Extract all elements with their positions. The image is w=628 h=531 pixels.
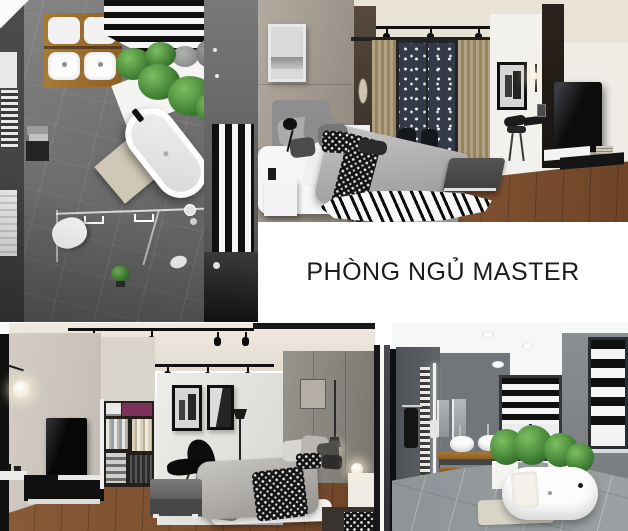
track2-light-3: [214, 337, 221, 346]
recessed-light-1: [482, 331, 494, 338]
recessed-light-3: [522, 343, 533, 349]
bed2-pillow-dark: [322, 454, 343, 469]
art1-shape-a: [179, 400, 185, 420]
render-collage: PHÒNG NGỦ MASTER: [0, 0, 628, 531]
caption-area: PHÒNG NGỦ MASTER: [258, 222, 628, 322]
art-shape-1: [505, 75, 512, 97]
art-frame-1: [172, 385, 202, 431]
black-lamp-shade: [283, 118, 297, 130]
desk-photo-frame: [537, 104, 546, 117]
panel-seam-b: [345, 351, 346, 483]
tub-towel: [511, 471, 539, 509]
wall-seam-1: [258, 84, 354, 85]
end-bench-cushion: [344, 512, 376, 531]
nightstand: [264, 180, 297, 216]
wardrobe-interior: [104, 401, 154, 487]
nightstand2-lamp: [351, 463, 363, 475]
wardrobe-white-box: [106, 403, 121, 416]
bath-window-2: [588, 337, 628, 449]
pendant-cord: [334, 380, 336, 438]
art-shape-2: [513, 71, 521, 99]
towel-bar: [402, 405, 422, 407]
recessed-light-2: [492, 361, 504, 368]
pillow-dark: [289, 137, 316, 159]
zebra-blind-2: [591, 340, 625, 426]
bath-slim-striped-blind: [420, 367, 430, 485]
bathroom-floor-shading: [0, 0, 258, 322]
wall-lamp-bulb: [530, 72, 538, 80]
nightstand2: [348, 473, 374, 509]
bed-ottoman: [442, 158, 505, 192]
photo-horizon: [271, 57, 303, 69]
track2-bar-1: [68, 328, 254, 331]
vanity-mirror-1: [437, 400, 449, 437]
wall-tv: [554, 82, 602, 152]
nightstand-vase: [268, 168, 276, 180]
wardrobe-shelves: [106, 453, 126, 483]
tub-drain: [548, 491, 552, 495]
console-white-shelf: [58, 475, 104, 480]
bath-sink-1: [450, 436, 474, 452]
ceiling-dark-edge: [253, 323, 375, 329]
ottoman2-foot-1: [153, 514, 159, 518]
book-stack: [596, 146, 613, 153]
art-frame-2: [207, 385, 234, 430]
left-black-strip: [0, 323, 9, 531]
tv-bottom: [46, 418, 87, 479]
bed2-diamond-throw: [251, 466, 309, 522]
bed2-pillow-diamond: [296, 452, 322, 469]
tub-overflow: [578, 483, 583, 488]
left-lamp-globe: [13, 381, 30, 398]
bathroom-plan-panel: [0, 0, 258, 322]
bedroom-bathroom-panel: [0, 323, 628, 531]
framed-photo-left: [268, 24, 306, 82]
ottoman2-foot-2: [192, 514, 198, 518]
console-base: [28, 499, 100, 504]
floating-shelf-left: [0, 471, 27, 480]
left-white-sliver: [0, 323, 9, 334]
framed-art-right: [497, 62, 527, 110]
shelf-item-2: [14, 466, 21, 471]
freestanding-tub: [502, 467, 598, 520]
hanging-clothes-right: [132, 419, 152, 451]
zebra-blind-1: [502, 378, 559, 424]
bedroom-perspective-panel: [258, 0, 628, 222]
wardrobe-upper-wall: [101, 337, 155, 401]
ottoman-base: [444, 188, 497, 191]
oval-mirror: [358, 78, 368, 104]
track2-light-4: [242, 337, 249, 346]
curtain-right: [458, 40, 490, 166]
ottoman2-top: [150, 479, 202, 501]
desk-chair-seat: [507, 126, 526, 133]
shelf-item-1: [2, 464, 11, 471]
hanging-clothes-left: [106, 419, 128, 449]
shoe-rack: [130, 455, 152, 483]
caption-text: PHÒNG NGỦ MASTER: [306, 258, 579, 287]
headboard-mirror-art: [300, 379, 326, 409]
pillow-diamond: [321, 130, 349, 154]
art1-shape-b: [188, 394, 196, 420]
black-towel: [404, 408, 418, 448]
wardrobe-purple-boxes: [122, 403, 152, 416]
